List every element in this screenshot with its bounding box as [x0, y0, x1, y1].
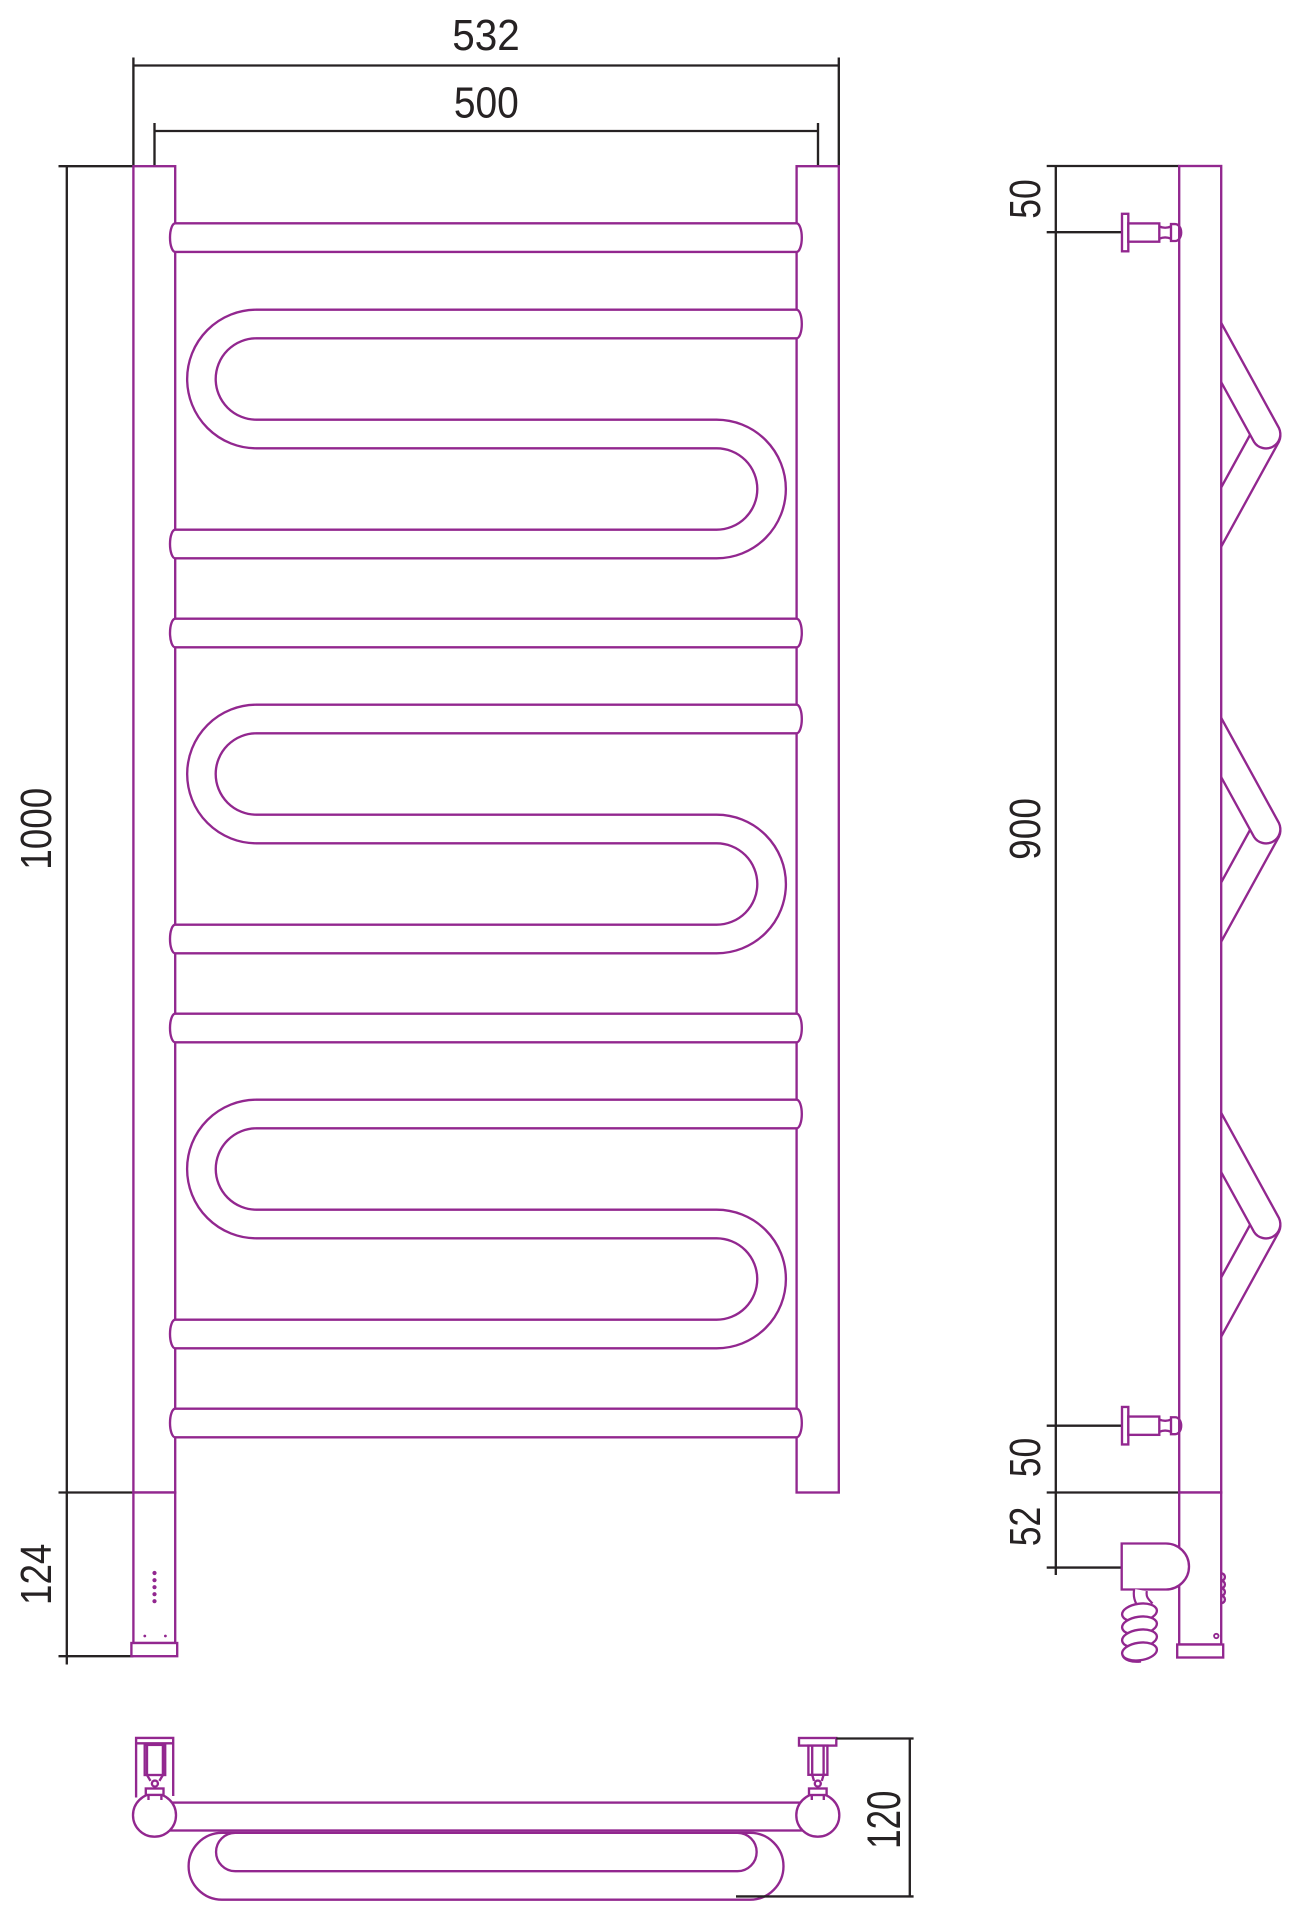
svg-text:50: 50 — [1001, 1438, 1049, 1478]
svg-text:120: 120 — [858, 1791, 910, 1849]
svg-text:52: 52 — [1001, 1507, 1049, 1547]
svg-text:124: 124 — [11, 1544, 61, 1605]
svg-text:50: 50 — [1001, 179, 1049, 219]
svg-text:900: 900 — [1000, 798, 1050, 860]
svg-text:1000: 1000 — [11, 788, 61, 870]
svg-text:532: 532 — [452, 10, 520, 59]
svg-text:500: 500 — [454, 77, 519, 127]
